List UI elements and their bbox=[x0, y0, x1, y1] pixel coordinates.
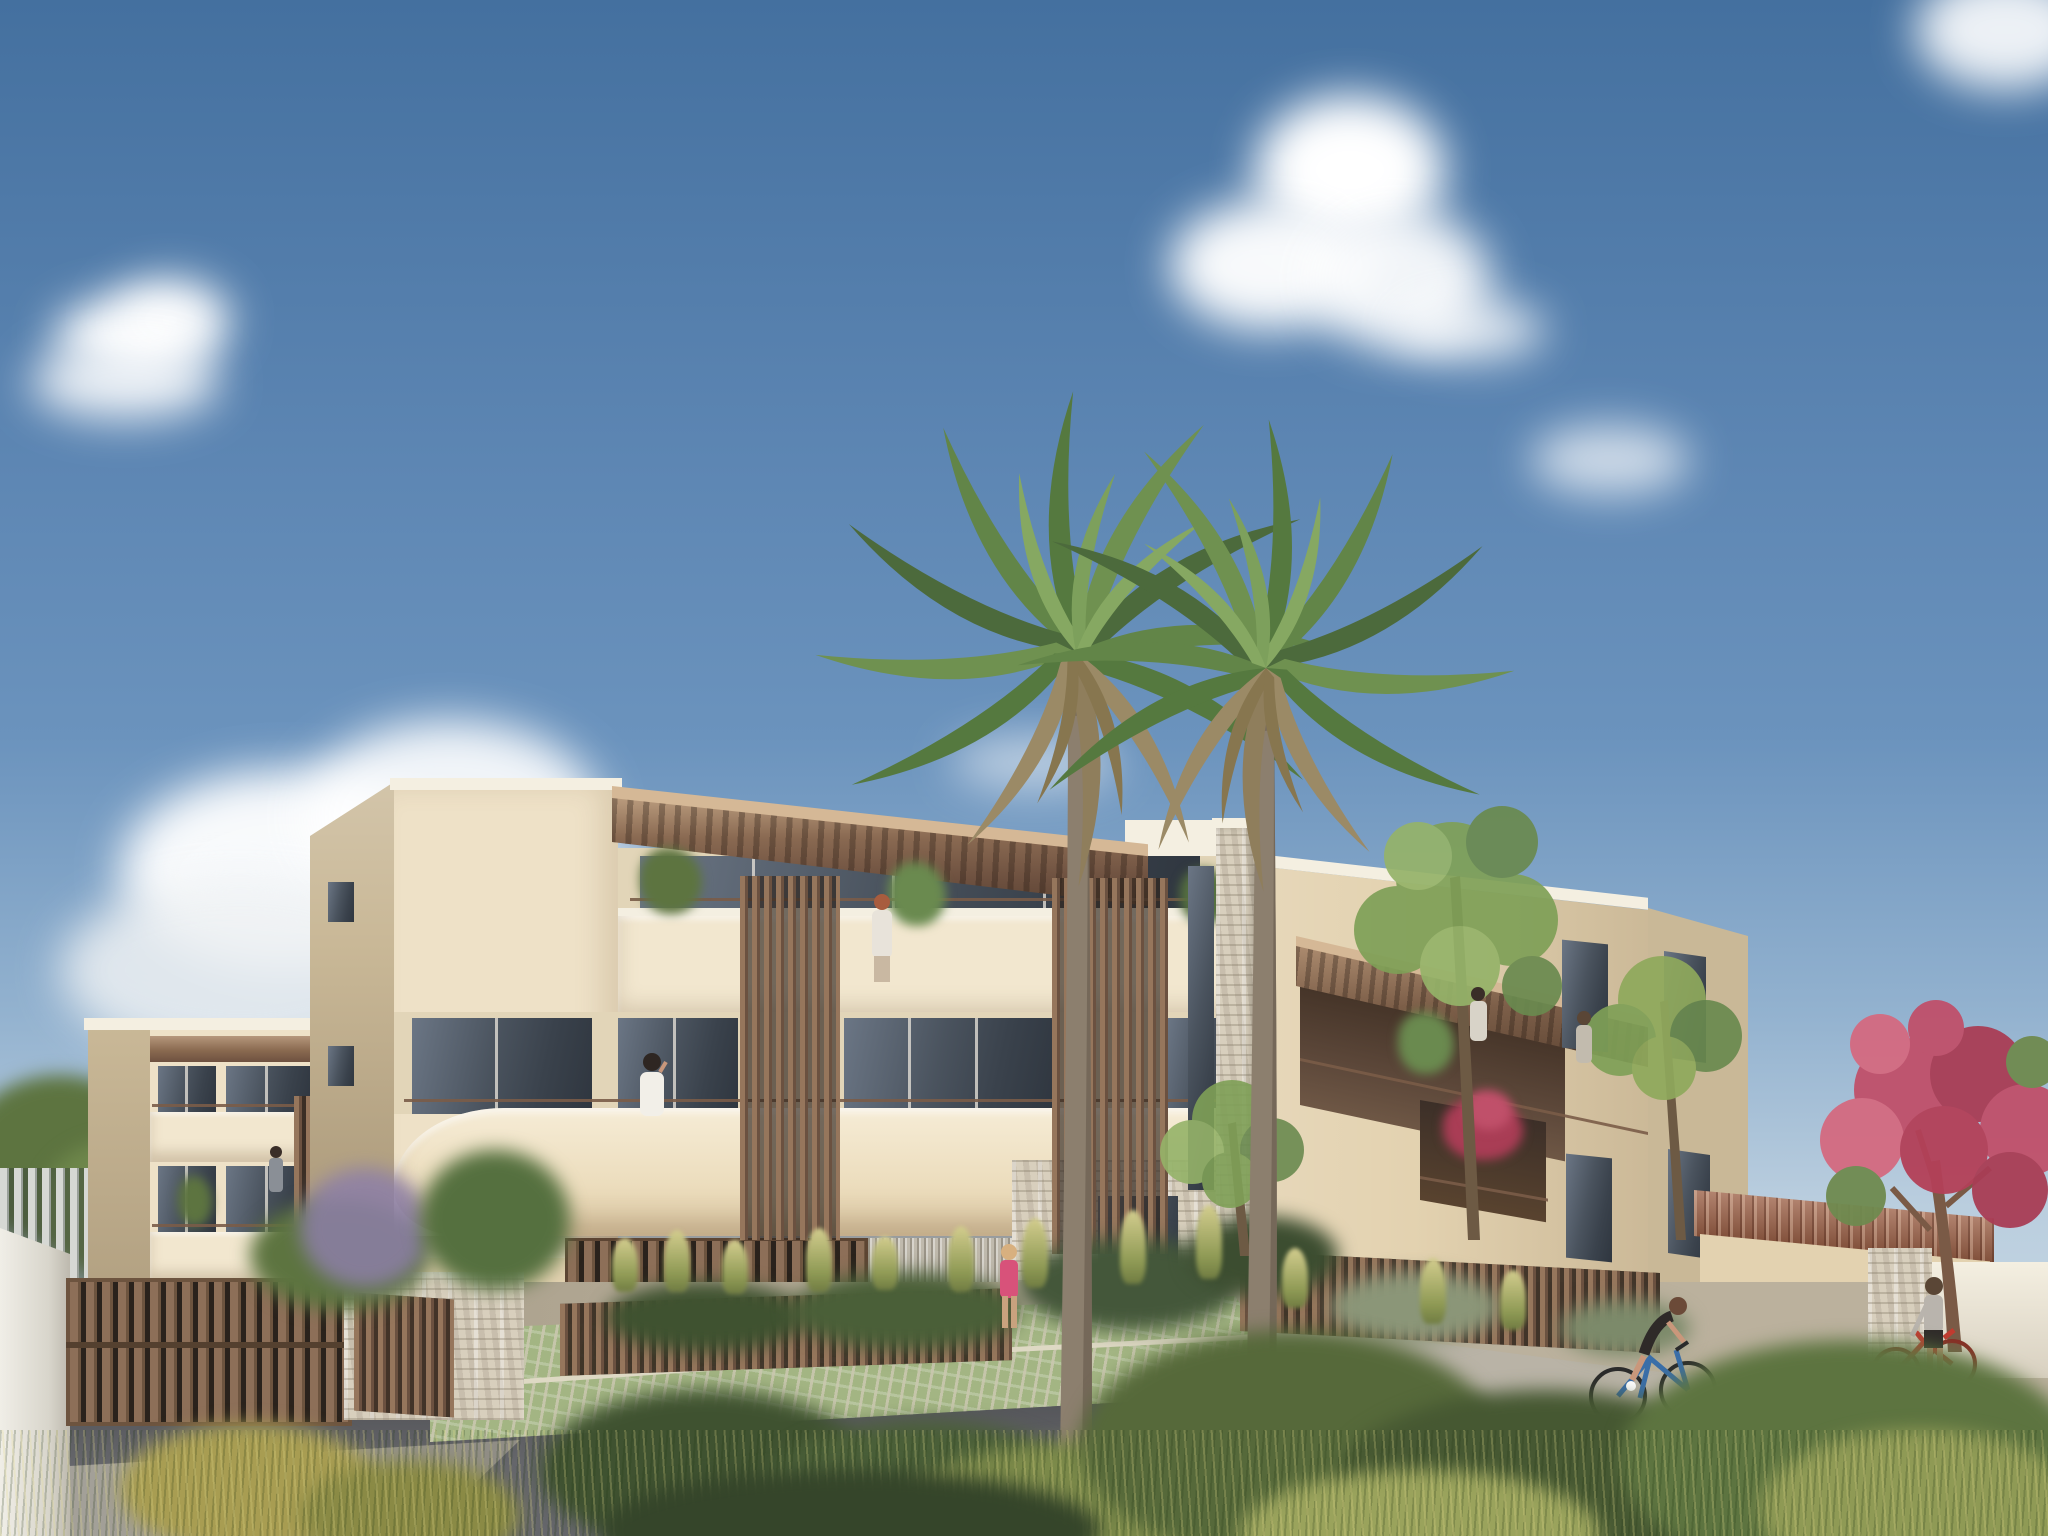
balcony-resident-main bbox=[640, 1053, 666, 1116]
tree-and-figure-layer bbox=[0, 0, 2048, 1536]
architectural-render-scene bbox=[0, 0, 2048, 1536]
street-tree-2 bbox=[1584, 956, 1742, 1240]
walker-pink-top bbox=[1000, 1244, 1018, 1328]
balcony-resident-left bbox=[269, 1146, 283, 1192]
rooftop-resident bbox=[872, 894, 892, 982]
terrace-resident-right-1 bbox=[1470, 987, 1487, 1041]
street-tree-1 bbox=[1354, 806, 1562, 1240]
terrace-resident-right-2 bbox=[1576, 1011, 1592, 1063]
street-tree-3 bbox=[1160, 1080, 1304, 1256]
